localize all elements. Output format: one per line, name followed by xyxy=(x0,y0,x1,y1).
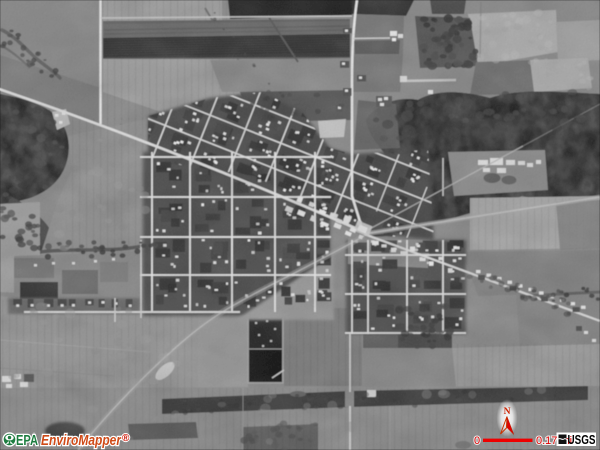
svg-text:N: N xyxy=(504,407,511,417)
svg-text:®: ® xyxy=(122,433,130,444)
svg-text:0: 0 xyxy=(474,435,480,447)
svg-text:USGS: USGS xyxy=(568,433,596,447)
svg-text:EPA: EPA xyxy=(16,433,38,449)
svg-text:EnviroMapper: EnviroMapper xyxy=(41,433,122,449)
